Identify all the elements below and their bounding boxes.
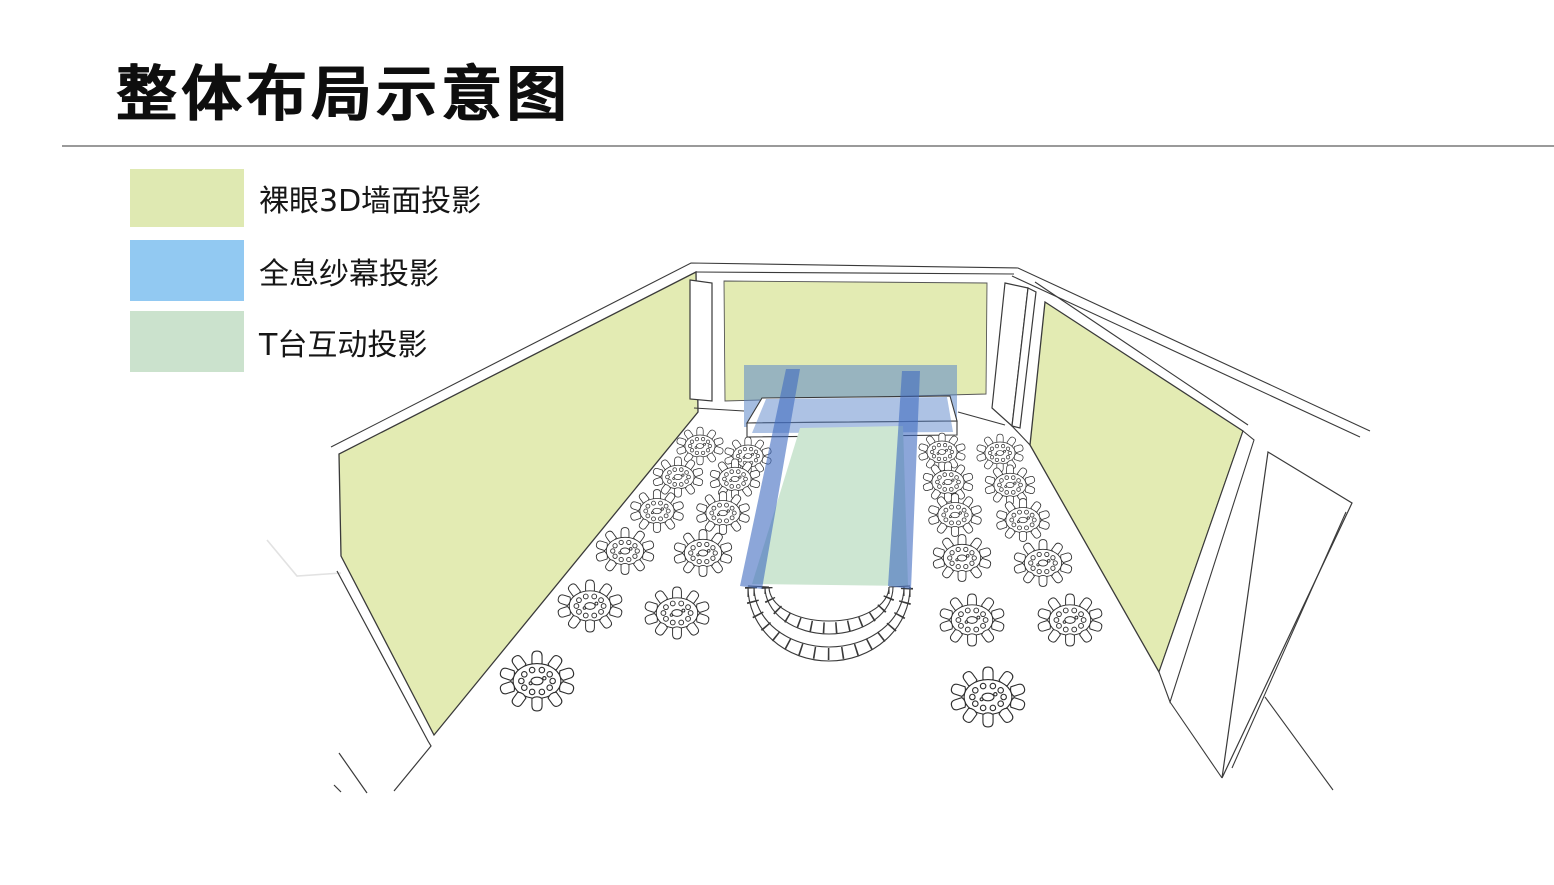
banquet-table <box>673 530 732 577</box>
banquet-table <box>996 499 1050 542</box>
banquet-table <box>932 535 991 582</box>
banquet-table <box>1037 594 1103 646</box>
banquet-table <box>950 667 1026 727</box>
pillar-right <box>992 283 1036 428</box>
faint-floor-outline <box>267 540 341 576</box>
banquet-table <box>696 492 750 535</box>
banquet-table <box>499 651 575 711</box>
banquet-table <box>939 594 1005 646</box>
right-floor-edge <box>1170 702 1222 778</box>
banquet-table <box>1013 540 1072 587</box>
layout-diagram <box>0 0 1554 885</box>
banquet-table <box>976 434 1024 472</box>
slide: 整体布局示意图 裸眼3D墙面投影 全息纱幕投影 T台互动投影 <box>0 0 1554 885</box>
banquet-table <box>557 580 623 632</box>
pillar-left <box>690 280 712 401</box>
banquet-table <box>918 433 966 471</box>
banquet-table <box>928 494 982 537</box>
wall-panel-right <box>1222 452 1352 778</box>
banquet-table <box>984 465 1035 505</box>
round-stage <box>748 586 910 661</box>
banquet-table <box>676 427 724 465</box>
banquet-table <box>595 528 654 575</box>
banquet-table <box>644 587 710 639</box>
